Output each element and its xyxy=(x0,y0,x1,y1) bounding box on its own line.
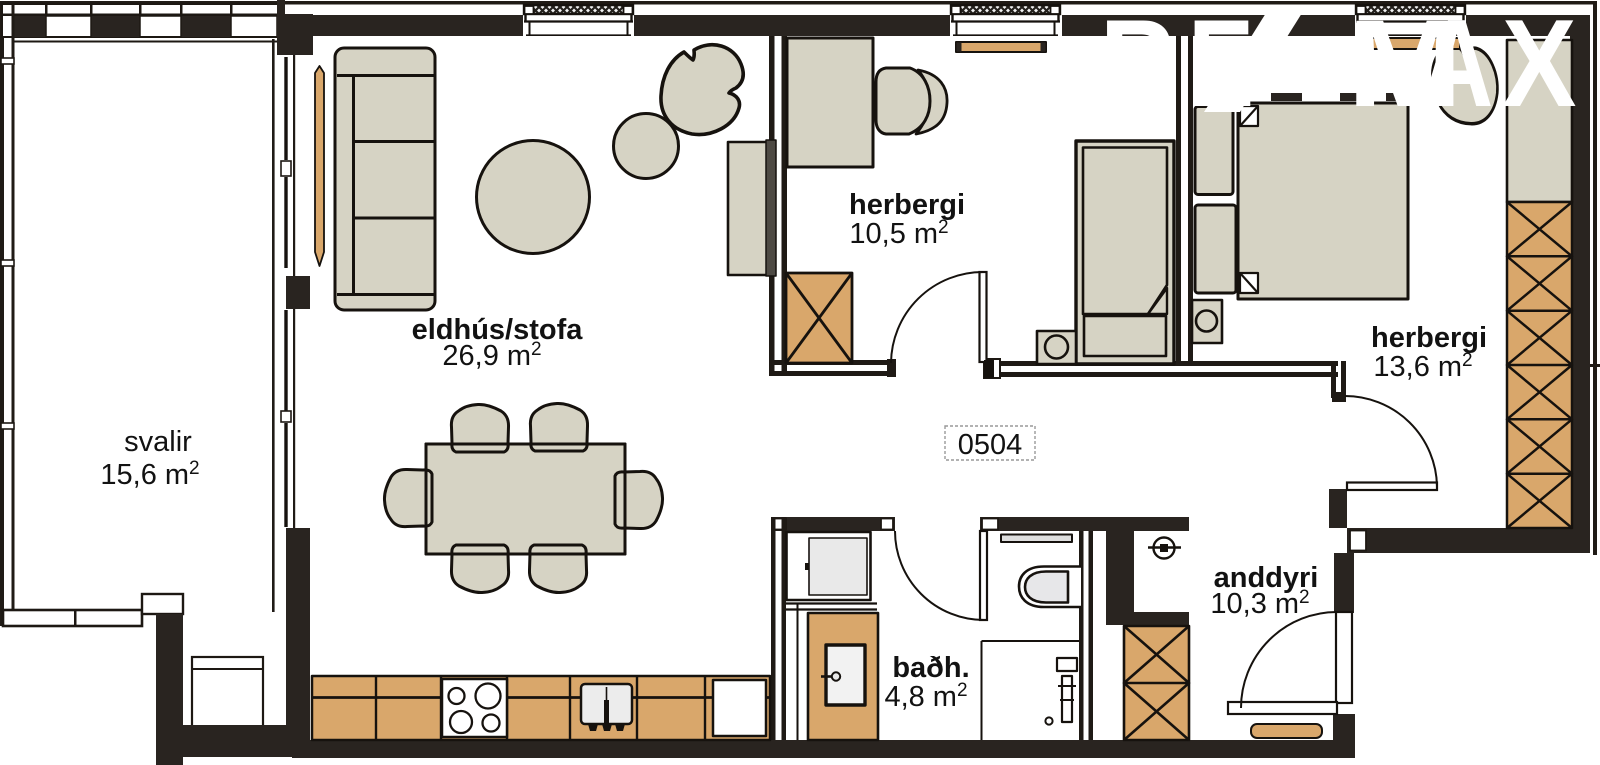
svg-text:X: X xyxy=(1502,0,1576,132)
svg-text:4,8 m2: 4,8 m2 xyxy=(884,680,967,713)
svg-text:10,5 m2: 10,5 m2 xyxy=(849,217,948,250)
svg-text:15,6 m2: 15,6 m2 xyxy=(100,458,199,491)
svg-text:0504: 0504 xyxy=(958,429,1023,461)
svg-text:svalir: svalir xyxy=(124,426,192,458)
svg-text:10,3 m2: 10,3 m2 xyxy=(1210,587,1309,620)
svg-text:A: A xyxy=(1420,0,1493,133)
svg-text:R: R xyxy=(1100,0,1176,133)
svg-text:26,9 m2: 26,9 m2 xyxy=(442,339,541,372)
svg-text:13,6 m2: 13,6 m2 xyxy=(1373,350,1472,383)
